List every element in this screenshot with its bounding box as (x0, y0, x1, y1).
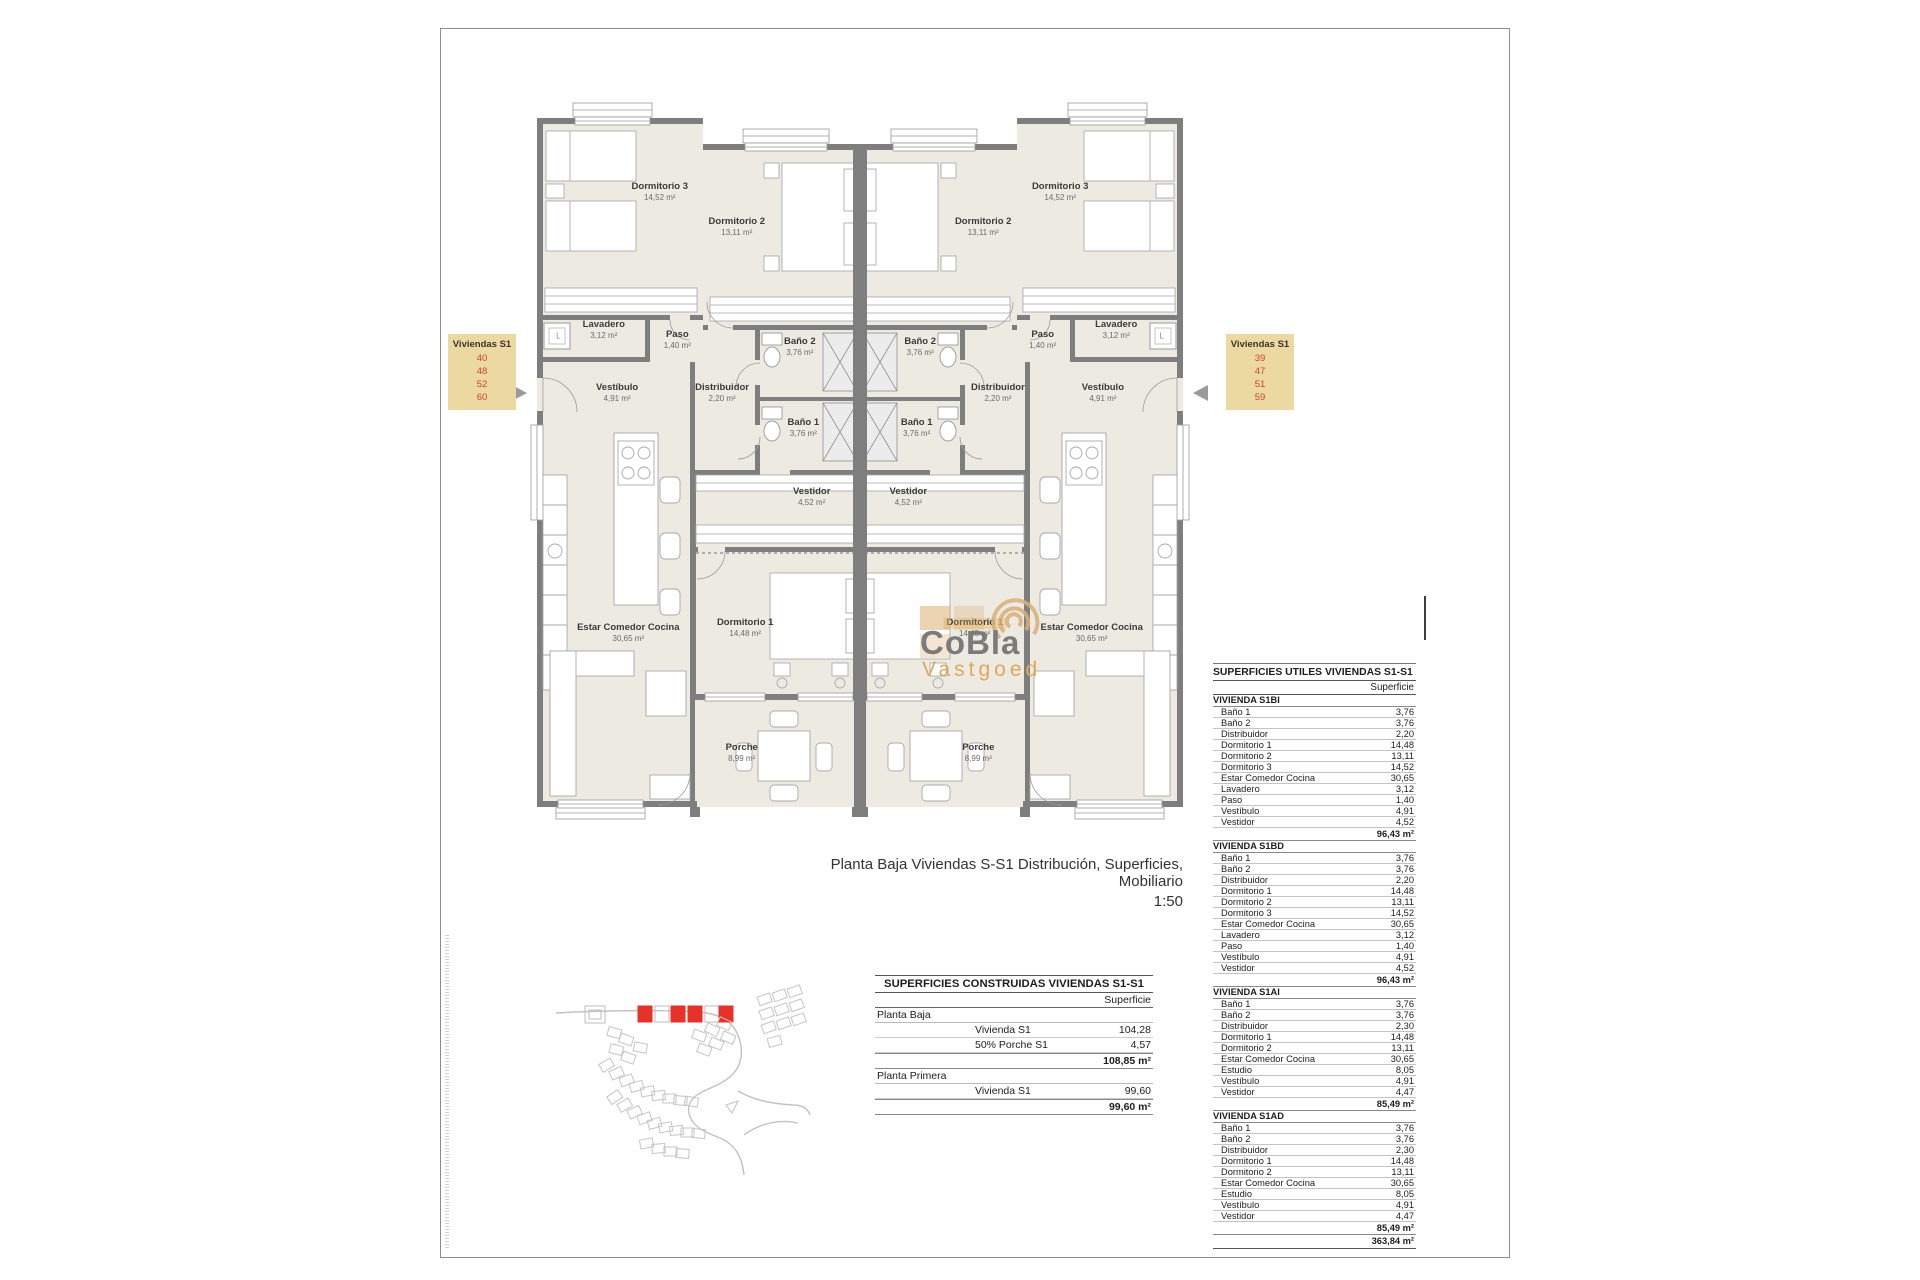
row-value: 30,65 (1391, 919, 1414, 929)
row-label: Distribuidor (1221, 1021, 1268, 1031)
table-row: Lavadero3,12 (1213, 930, 1416, 941)
highlighted-plot (688, 1006, 702, 1022)
table-row: Distribuidor2,20 (1213, 875, 1416, 886)
unit-right (858, 103, 1189, 819)
row-label: Baño 2 (1221, 1134, 1250, 1144)
table-row: Paso1,40 (1213, 941, 1416, 952)
table-row: Paso1,40 (1213, 795, 1416, 806)
row-label: Baño 1 (1221, 1123, 1250, 1133)
row-label: Dormitorio 2 (1221, 1167, 1272, 1177)
table-row: Vivienda S199,60 (875, 1084, 1153, 1099)
plot (621, 1051, 636, 1064)
table-row: Lavadero3,12 (1213, 784, 1416, 795)
row-label: Baño 2 (1221, 864, 1250, 874)
table-row: Vestíbulo4,91 (1213, 952, 1416, 963)
tag-numbers: 40485260 (450, 352, 514, 404)
row-value: 2,20 (1396, 729, 1414, 739)
row-value: 1,40 (1396, 941, 1414, 951)
table-row: Dormitorio 114,48 (1213, 740, 1416, 751)
plot (787, 985, 802, 998)
tag-title: Viviendas S1 (450, 339, 514, 350)
tag-number: 60 (450, 391, 514, 404)
table-row: Estar Comedor Cocina30,65 (1213, 1178, 1416, 1189)
row-value: 4,52 (1396, 963, 1414, 973)
table-row: Distribuidor2,30 (1213, 1021, 1416, 1032)
table-row: Estar Comedor Cocina30,65 (1213, 773, 1416, 784)
plot (609, 1066, 625, 1080)
plot (617, 1098, 633, 1112)
table-row: Baño 23,76 (1213, 864, 1416, 875)
row-value: 4,91 (1396, 952, 1414, 962)
section-total: 96,43 m² (1213, 828, 1416, 841)
row-value: 8,05 (1396, 1189, 1414, 1199)
unit-left (531, 103, 862, 819)
floor-plan-drawing (510, 85, 1210, 825)
plot (767, 1035, 782, 1047)
highlighted-plot (671, 1006, 685, 1022)
row-label: Baño 1 (1221, 853, 1250, 863)
plot (619, 1033, 634, 1046)
table-row: Dormitorio 114,48 (1213, 886, 1416, 897)
row-value: 13,11 (1391, 751, 1414, 761)
row-label: Vestíbulo (1221, 806, 1259, 816)
row-label: Vestíbulo (1221, 1076, 1259, 1086)
table-row: Distribuidor2,30 (1213, 1145, 1416, 1156)
row-value: 3,76 (1396, 1134, 1414, 1144)
tag-numbers: 39475159 (1228, 352, 1292, 404)
row-value: 4,91 (1396, 1200, 1414, 1210)
row-value: 8,05 (1396, 1065, 1414, 1075)
row-value: 2,20 (1396, 875, 1414, 885)
plot (776, 1017, 791, 1030)
plot (637, 1112, 652, 1125)
row-label: Baño 1 (1221, 999, 1250, 1009)
plot (658, 1122, 672, 1133)
row-value: 4,91 (1396, 1076, 1414, 1086)
row-value: 3,76 (1396, 999, 1414, 1009)
plot (761, 1021, 776, 1034)
row-label: Dormitorio 2 (1221, 897, 1272, 907)
tag-number: 40 (450, 352, 514, 365)
table-row: Estar Comedor Cocina30,65 (1213, 1054, 1416, 1065)
tag-number: 52 (450, 378, 514, 391)
row-label: Baño 1 (1221, 707, 1250, 717)
row-value: 14,48 (1391, 886, 1414, 896)
row-label: Baño 2 (1221, 718, 1250, 728)
row-value: 3,12 (1396, 784, 1414, 794)
section-header: VIVIENDA S1AI (1213, 987, 1416, 999)
tag-number: 47 (1228, 365, 1292, 378)
row-value: 13,11 (1391, 897, 1414, 907)
washer-letter: L (1159, 331, 1163, 340)
section-total: 96,43 m² (1213, 974, 1416, 987)
row-value: 3,76 (1396, 864, 1414, 874)
row-value: 30,65 (1391, 1178, 1414, 1188)
table-row: 50% Porche S14,57 (875, 1038, 1153, 1053)
row-value: 13,11 (1391, 1043, 1414, 1053)
row-label: Baño 2 (1221, 1010, 1250, 1020)
superficies-construidas-table: SUPERFICIES CONSTRUIDAS VIVIENDAS S1-S1S… (875, 975, 1153, 1115)
row-label: Paso (1221, 795, 1242, 805)
row-value: 4,47 (1396, 1211, 1414, 1221)
section-header: VIVIENDA S1BD (1213, 841, 1416, 853)
table-row: Vestidor4,52 (1213, 963, 1416, 974)
row-label: Estudio (1221, 1065, 1252, 1075)
table-row: Dormitorio 213,11 (1213, 1043, 1416, 1054)
plot (774, 1003, 789, 1016)
grand-total: 363,84 m² (1213, 1235, 1416, 1249)
row-label: Dormitorio 3 (1221, 908, 1272, 918)
architectural-sheet-page: Dormitorio 314,52 m²Dormitorio 213,11 m²… (0, 0, 1920, 1280)
washer-letter: L (556, 331, 560, 340)
row-label: 50% Porche S1 (975, 1039, 1048, 1051)
row-label: Estudio (1221, 1189, 1252, 1199)
row-label: Estar Comedor Cocina (1221, 919, 1315, 929)
table-row: Baño 13,76 (1213, 999, 1416, 1010)
row-label: Vestíbulo (1221, 952, 1259, 962)
row-label: Lavadero (1221, 930, 1260, 940)
site-location-map (548, 973, 813, 1181)
section-total: 85,49 m² (1213, 1222, 1416, 1235)
section-total: 85,49 m² (1213, 1098, 1416, 1111)
plot (789, 999, 804, 1012)
table-row: Vestidor4,47 (1213, 1087, 1416, 1098)
row-value: 13,11 (1391, 1167, 1414, 1177)
table-row: Dormitorio 213,11 (1213, 897, 1416, 908)
row-label: Vestíbulo (1221, 1200, 1259, 1210)
row-label: Vivienda S1 (975, 1085, 1031, 1097)
table-title: SUPERFICIES CONSTRUIDAS VIVIENDAS S1-S1 (875, 975, 1153, 993)
table-row: Vestidor4,47 (1213, 1211, 1416, 1222)
row-label: Dormitorio 1 (1221, 886, 1272, 896)
table-row: Baño 13,76 (1213, 853, 1416, 864)
plot (609, 1044, 624, 1056)
caption-scale: 1:50 (780, 893, 1183, 910)
viviendas-tag-left: Viviendas S1 40485260 (448, 334, 516, 410)
row-label: Vivienda S1 (975, 1024, 1031, 1036)
table-row: Dormitorio 114,48 (1213, 1156, 1416, 1167)
plot (720, 1031, 736, 1045)
row-value: 3,12 (1396, 930, 1414, 940)
tag-number: 39 (1228, 352, 1292, 365)
row-value: 3,76 (1396, 718, 1414, 728)
table-row: Estudio8,05 (1213, 1189, 1416, 1200)
table-row: Vivienda S1104,28 (875, 1023, 1153, 1038)
table-row: Baño 13,76 (1213, 1123, 1416, 1134)
entrance-arrow-right-icon (1193, 385, 1208, 401)
table-row: Vestíbulo4,91 (1213, 1076, 1416, 1087)
row-value: 14,48 (1391, 740, 1414, 750)
table-row: Vestidor4,52 (1213, 817, 1416, 828)
plot (759, 1007, 774, 1020)
tag-number: 59 (1228, 391, 1292, 404)
tag-title: Viviendas S1 (1228, 339, 1292, 350)
superficies-utiles-table: SUPERFICIES UTILES VIVIENDAS S1-S1Superf… (1213, 663, 1416, 1249)
tick-mark (1424, 596, 1426, 640)
plot (772, 989, 787, 1002)
plot (664, 1147, 677, 1156)
plot (757, 993, 772, 1006)
row-label: Dormitorio 3 (1221, 762, 1272, 772)
table-row: Estudio8,05 (1213, 1065, 1416, 1076)
group-total: 99,60 m² (875, 1099, 1153, 1115)
row-value: 4,52 (1396, 817, 1414, 827)
row-value: 30,65 (1391, 773, 1414, 783)
column-header: Superficie (1213, 681, 1416, 695)
row-value: 3,76 (1396, 853, 1414, 863)
row-label: Distribuidor (1221, 875, 1268, 885)
table-row: Distribuidor2,20 (1213, 729, 1416, 740)
table-row: Estar Comedor Cocina30,65 (1213, 919, 1416, 930)
plot (676, 1148, 690, 1158)
row-label: Vestidor (1221, 817, 1255, 827)
row-value: 14,48 (1391, 1032, 1414, 1042)
group-header: Planta Baja (875, 1008, 1153, 1023)
table-row: Vestíbulo4,91 (1213, 1200, 1416, 1211)
plot (655, 1006, 669, 1022)
row-value: 14,52 (1391, 762, 1414, 772)
plot (791, 1013, 806, 1026)
row-label: Estar Comedor Cocina (1221, 1178, 1315, 1188)
group-header: Planta Primera (875, 1069, 1153, 1084)
row-label: Estar Comedor Cocina (1221, 773, 1315, 783)
row-value: 1,40 (1396, 795, 1414, 805)
row-value: 3,76 (1396, 1010, 1414, 1020)
party-wall (853, 144, 867, 700)
row-label: Dormitorio 1 (1221, 740, 1272, 750)
plot (633, 1042, 647, 1053)
row-value: 3,76 (1396, 1123, 1414, 1133)
row-label: Vestidor (1221, 1211, 1255, 1221)
porch-divider-wall (854, 700, 866, 817)
plot (709, 1037, 724, 1050)
row-label: Dormitorio 1 (1221, 1032, 1272, 1042)
row-value: 3,76 (1396, 707, 1414, 717)
row-value: 30,65 (1391, 1054, 1414, 1064)
row-value: 2,30 (1396, 1145, 1414, 1155)
viviendas-tag-right: Viviendas S1 39475159 (1226, 334, 1294, 410)
row-value: 2,30 (1396, 1021, 1414, 1031)
floor-plan: Dormitorio 314,52 m²Dormitorio 213,11 m²… (510, 85, 1210, 825)
table-row: Baño 23,76 (1213, 718, 1416, 729)
row-value: 99,60 (1125, 1085, 1151, 1097)
row-label: Distribuidor (1221, 729, 1268, 739)
row-label: Paso (1221, 941, 1242, 951)
drawing-caption: Planta Baja Viviendas S-S1 Distribución,… (780, 856, 1183, 910)
table-row: Vestíbulo4,91 (1213, 806, 1416, 817)
plot (607, 1027, 622, 1039)
sheet-edge-micro-text (445, 935, 449, 1250)
row-value: 4,57 (1131, 1039, 1151, 1051)
row-label: Distribuidor (1221, 1145, 1268, 1155)
table-row: Dormitorio 314,52 (1213, 762, 1416, 773)
table-row: Dormitorio 213,11 (1213, 751, 1416, 762)
plot (697, 1043, 712, 1056)
highlighted-plot (638, 1006, 652, 1022)
row-value: 4,91 (1396, 806, 1414, 816)
table-row: Baño 13,76 (1213, 707, 1416, 718)
table-row: Dormitorio 213,11 (1213, 1167, 1416, 1178)
plot (629, 1080, 644, 1092)
group-total: 108,85 m² (875, 1053, 1153, 1069)
column-header: Superficie (875, 993, 1153, 1008)
table-row: Baño 23,76 (1213, 1134, 1416, 1145)
row-label: Lavadero (1221, 784, 1260, 794)
row-value: 14,52 (1391, 908, 1414, 918)
table-row: Dormitorio 314,52 (1213, 908, 1416, 919)
row-value: 4,47 (1396, 1087, 1414, 1097)
tag-number: 48 (450, 365, 514, 378)
section-header: VIVIENDA S1BI (1213, 695, 1416, 707)
row-label: Estar Comedor Cocina (1221, 1054, 1315, 1064)
site-map-drawing (548, 973, 813, 1181)
section-header: VIVIENDA S1AD (1213, 1111, 1416, 1123)
row-value: 104,28 (1119, 1024, 1151, 1036)
row-label: Vestidor (1221, 963, 1255, 973)
row-label: Dormitorio 2 (1221, 1043, 1272, 1053)
table-row: Baño 23,76 (1213, 1010, 1416, 1021)
row-label: Vestidor (1221, 1087, 1255, 1097)
row-label: Dormitorio 1 (1221, 1156, 1272, 1166)
table-title: SUPERFICIES UTILES VIVIENDAS S1-S1 (1213, 663, 1416, 681)
row-label: Dormitorio 2 (1221, 751, 1272, 761)
table-row: Dormitorio 114,48 (1213, 1032, 1416, 1043)
row-value: 14,48 (1391, 1156, 1414, 1166)
tag-number: 51 (1228, 378, 1292, 391)
caption-title: Planta Baja Viviendas S-S1 Distribución,… (780, 856, 1183, 890)
